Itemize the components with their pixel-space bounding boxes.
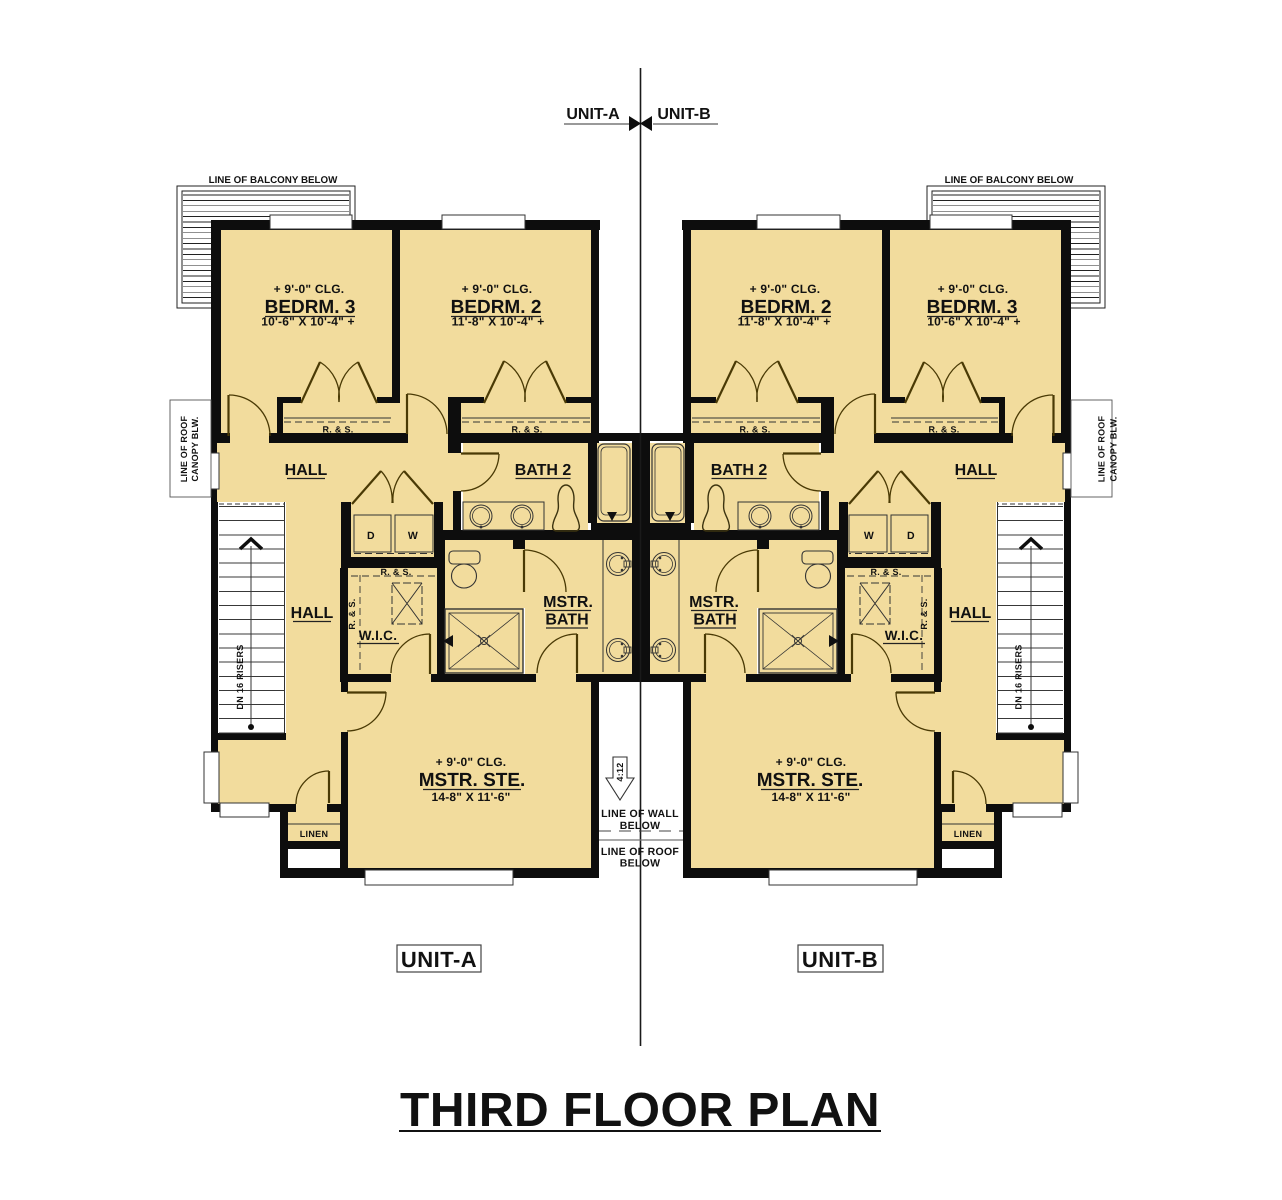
svg-text:R. & S.: R. & S. [380,567,411,577]
svg-text:LINE OF BALCONY BELOW: LINE OF BALCONY BELOW [209,175,339,186]
svg-text:R. & S.: R. & S. [870,567,901,577]
svg-text:HALL: HALL [291,605,334,622]
svg-text:BATH 2: BATH 2 [515,462,572,479]
svg-text:THIRD FLOOR PLAN: THIRD FLOOR PLAN [400,1084,880,1137]
svg-text:LINE OF ROOF: LINE OF ROOF [601,846,680,858]
svg-text:LINE OF WALL: LINE OF WALL [601,808,679,820]
svg-text:DN 16 RISERS: DN 16 RISERS [235,644,245,709]
svg-text:LINE OF BALCONY BELOW: LINE OF BALCONY BELOW [945,175,1075,186]
svg-text:R. & S.: R. & S. [919,598,929,629]
svg-text:BATH: BATH [545,612,588,629]
svg-text:+ 9'-0" CLG.: + 9'-0" CLG. [436,755,507,769]
svg-text:DN 16 RISERS: DN 16 RISERS [1014,644,1024,709]
svg-text:14-8" X 11'-6": 14-8" X 11'-6" [771,790,850,804]
svg-text:CANOPY BLW.: CANOPY BLW. [190,416,200,481]
svg-text:+ 9'-0" CLG.: + 9'-0" CLG. [776,755,847,769]
svg-text:UNIT-A: UNIT-A [566,106,620,123]
svg-text:+ 9'-0" CLG.: + 9'-0" CLG. [750,282,821,296]
svg-text:14-8" X 11'-6": 14-8" X 11'-6" [431,790,510,804]
svg-text:UNIT-B: UNIT-B [657,106,710,123]
svg-text:R. & S.: R. & S. [347,598,357,629]
svg-text:10'-6" X 10'-4" +: 10'-6" X 10'-4" + [927,315,1021,329]
svg-text:HALL: HALL [955,462,998,479]
svg-text:BATH: BATH [693,612,736,629]
svg-text:W.I.C.: W.I.C. [885,628,924,643]
svg-text:MSTR.: MSTR. [689,594,739,611]
svg-text:4:12: 4:12 [615,762,625,781]
svg-text:MSTR. STE.: MSTR. STE. [419,770,526,791]
svg-text:BELOW: BELOW [620,820,661,832]
svg-text:11'-8" X 10'-4" +: 11'-8" X 10'-4" + [452,315,545,329]
svg-text:LINEN: LINEN [300,829,329,839]
svg-text:HALL: HALL [285,462,328,479]
svg-text:MSTR.: MSTR. [543,594,593,611]
svg-text:UNIT-B: UNIT-B [802,947,878,972]
svg-text:UNIT-A: UNIT-A [401,947,477,972]
svg-text:CANOPY BLW.: CANOPY BLW. [1109,416,1119,481]
svg-text:10'-6" X 10'-4" +: 10'-6" X 10'-4" + [261,315,355,329]
svg-text:LINE OF ROOF: LINE OF ROOF [1097,416,1107,483]
svg-text:+ 9'-0" CLG.: + 9'-0" CLG. [938,282,1009,296]
svg-text:BATH 2: BATH 2 [711,462,768,479]
svg-text:LINE OF ROOF: LINE OF ROOF [179,416,189,483]
svg-text:W: W [864,530,874,542]
svg-text:D: D [907,530,915,542]
svg-text:+ 9'-0" CLG.: + 9'-0" CLG. [462,282,533,296]
svg-text:D: D [367,530,375,542]
svg-text:W: W [408,530,418,542]
svg-text:11'-8" X 10'-4" +: 11'-8" X 10'-4" + [738,315,831,329]
svg-text:MSTR. STE.: MSTR. STE. [757,770,864,791]
svg-text:R. & S.: R. & S. [322,425,353,435]
svg-text:+ 9'-0" CLG.: + 9'-0" CLG. [274,282,345,296]
svg-text:R. & S.: R. & S. [739,425,770,435]
svg-text:W.I.C.: W.I.C. [359,628,398,643]
svg-text:R. & S.: R. & S. [928,425,959,435]
svg-text:HALL: HALL [949,605,992,622]
svg-text:R. & S.: R. & S. [511,425,542,435]
svg-text:BELOW: BELOW [620,858,661,870]
svg-text:LINEN: LINEN [954,829,983,839]
